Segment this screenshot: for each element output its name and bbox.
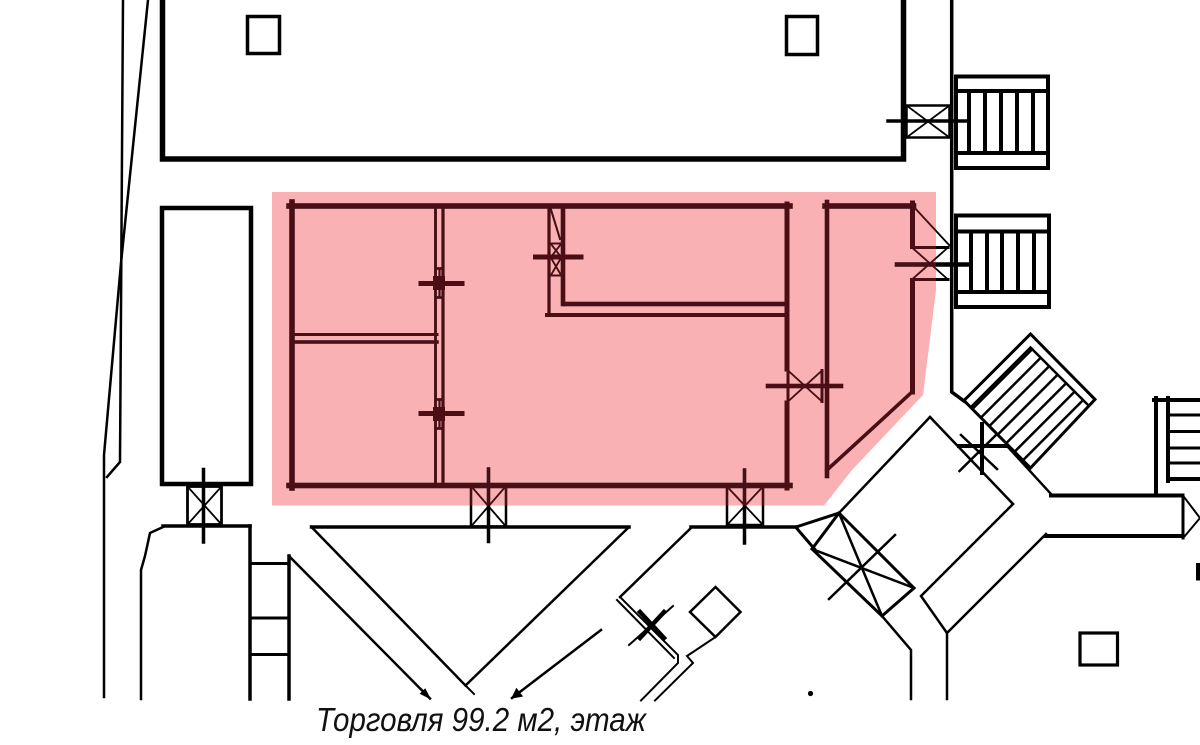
svg-text:Торговля 99.2 м2, этаж: Торговля 99.2 м2, этаж [316,702,648,739]
